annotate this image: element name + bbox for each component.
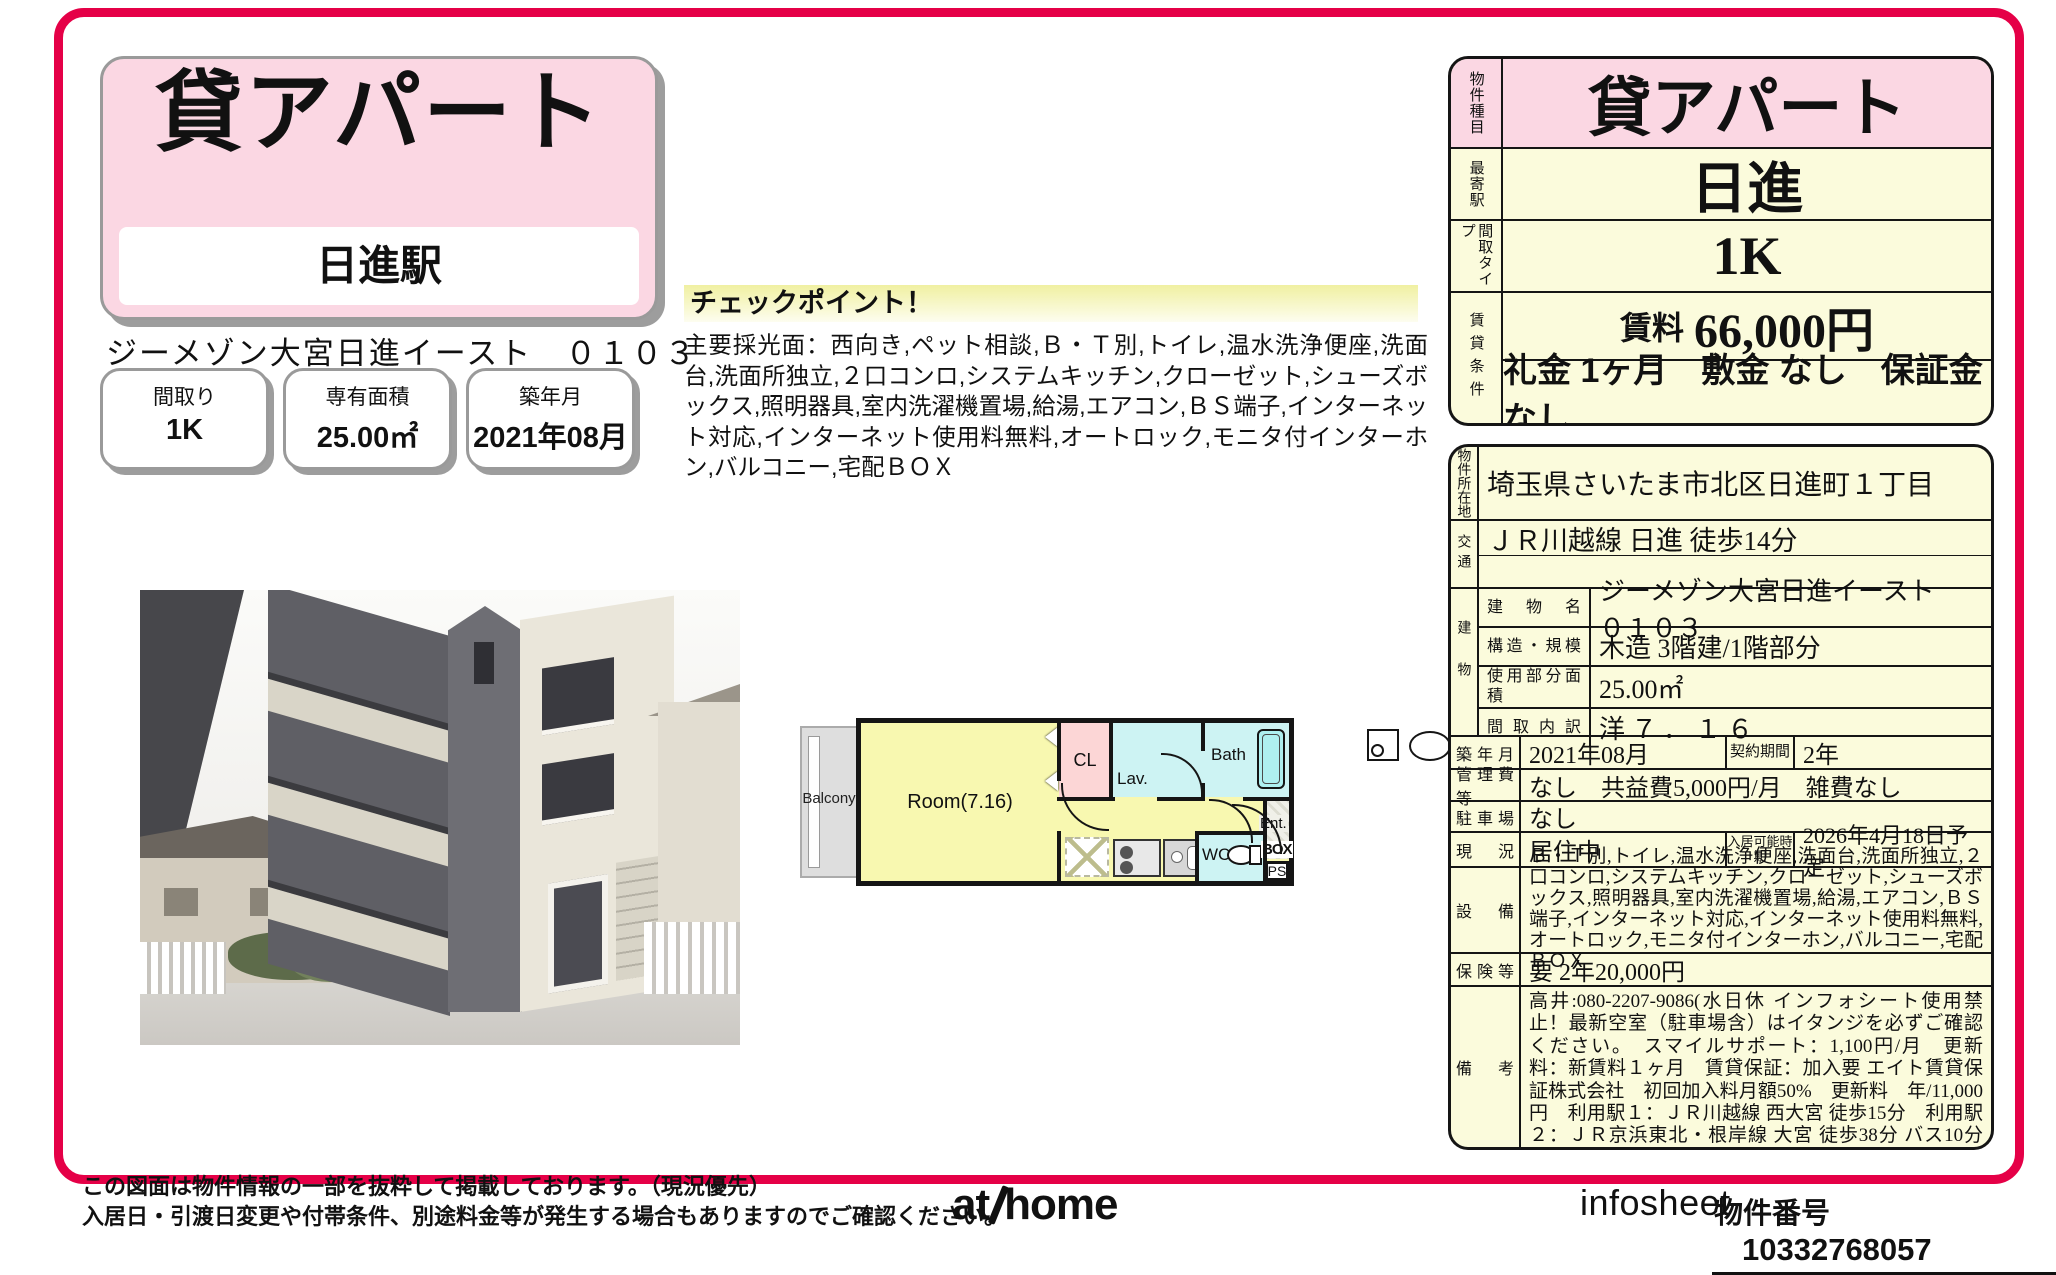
athome-logo-at: at — [952, 1180, 989, 1230]
structure-value: 木造 3階建/1階部分 — [1591, 628, 1991, 665]
station-name-box: 日進駅 — [119, 227, 639, 305]
photo-fence — [140, 942, 226, 994]
infosheet-label: infosheet — [1580, 1182, 1731, 1224]
photo-window — [164, 888, 198, 916]
disclaimer-line2: 入居日・引渡日変更や付帯条件、別途料金等が発生する場合もありますのでご確認くださ… — [82, 1202, 1006, 1232]
contract-value: 2年 — [1795, 737, 1991, 768]
room-label: Room(7.16) — [861, 723, 1059, 881]
notes-label: 備考 — [1451, 987, 1521, 1147]
building-name-value: ジーメゾン大宮日進イースト ０１０３ — [1591, 589, 1991, 626]
notes-value: 高井:080-2207-9086(水日休 インフォシート使用禁止！最新空室（駐車… — [1521, 987, 1991, 1147]
type-value: 貸アパート — [1503, 59, 1991, 147]
bath-area: Bath — [1203, 723, 1289, 797]
layout-label: 間取タイプ — [1451, 221, 1503, 291]
info-table: 物件種目 貸アパート 最寄駅 日進 間取タイプ 1K 賃貸条件 賃料 66,00… — [1448, 56, 1994, 426]
structure-label: 構造・規模 — [1479, 628, 1591, 665]
detail-table: 物件所在地 埼玉県さいたま市北区日進町１丁目 交通 ＪＲ川越線 日進 徒歩14分… — [1448, 444, 1994, 1150]
access-line1: ＪＲ川越線 日進 徒歩14分 — [1479, 521, 1991, 556]
disclaimer-line1: この図面は物件情報の一部を抜粋して掲載しております。（現況優先） — [82, 1172, 1006, 1202]
photo-window — [542, 657, 614, 735]
fees-value: なし 共益費5,000円/月 雑費なし — [1521, 770, 1991, 800]
terms-label: 賃貸条件 — [1451, 293, 1503, 423]
athome-logo: at home — [952, 1180, 1117, 1230]
photo-fence — [644, 922, 740, 994]
summary-value: 25.00㎡ — [286, 414, 449, 456]
summary-label: 築年月 — [469, 381, 632, 411]
station-value: 日進 — [1503, 149, 1991, 219]
equipment-label: 設備 — [1451, 868, 1521, 952]
footer-disclaimer: この図面は物件情報の一部を抜粋して掲載しております。（現況優先） 入居日・引渡日… — [82, 1172, 1006, 1232]
type-label: 物件種目 — [1451, 59, 1503, 147]
floorplan-outline: Room(7.16) CL Lav. Bath WC Ent. BOX PS — [856, 718, 1294, 886]
property-name: ジーメゾン大宮日進イースト ０１０３ — [106, 328, 697, 373]
photo-window — [474, 642, 494, 684]
access-label: 交通 — [1451, 521, 1479, 587]
washer-icon — [1367, 729, 1399, 761]
sink-icon — [1409, 731, 1451, 761]
building-label: 建物 — [1451, 589, 1479, 735]
page-title: 貸アパート — [103, 65, 655, 162]
stove-icon — [1113, 839, 1161, 877]
pipe-space: PS — [1265, 861, 1289, 881]
location-label: 物件所在地 — [1451, 447, 1479, 519]
built-value: 2021年08月 — [1521, 737, 1725, 768]
summary-boxes: 間取り 1K 専有面積 25.00㎡ 築年月 2021年08月 — [100, 368, 635, 470]
property-number-label: 物件番号 — [1714, 1198, 1830, 1230]
insurance-value: 要 2年20,000円 — [1521, 954, 1991, 985]
contract-label: 契約期間 — [1725, 737, 1795, 768]
photo-window — [542, 753, 614, 825]
used-area-label: 使用部分面積 — [1479, 667, 1591, 707]
equipment-value: Ｂ・Ｔ別,トイレ,温水洗浄便座,洗面台,洗面所独立,２口コンロ,システムキッチン… — [1521, 868, 1991, 952]
building-photo — [140, 590, 740, 1045]
property-number-value: 10332768057 — [1742, 1232, 1932, 1267]
summary-label: 間取り — [103, 381, 266, 411]
summary-box-layout: 間取り 1K — [100, 368, 269, 470]
insurance-label: 保険等 — [1451, 954, 1521, 985]
photo-main-facade — [268, 590, 450, 1016]
bathtub-icon — [1257, 729, 1285, 789]
hatch-square — [1065, 837, 1109, 877]
location-value: 埼玉県さいたま市北区日進町１丁目 — [1479, 447, 1991, 519]
floor-plan: Balcony Room(7.16) CL Lav. Bath WC Ent. — [800, 718, 1300, 898]
summary-box-area: 専有面積 25.00㎡ — [283, 368, 452, 470]
photo-entrance-door — [548, 874, 608, 994]
door-arc — [1061, 783, 1109, 831]
used-area-value: 25.00㎡ — [1591, 667, 1991, 707]
checkpoint-banner: チェックポイント！ — [684, 285, 1418, 322]
property-number: 物件番号 10332768057 — [1712, 1190, 2056, 1275]
fees-label: 管理費等 — [1451, 770, 1521, 800]
lavatory-label: Lav. — [1117, 769, 1148, 789]
summary-value: 1K — [103, 414, 266, 447]
status-label: 現況 — [1451, 833, 1521, 866]
building-name-label: 建物名 — [1479, 589, 1591, 626]
athome-logo-home: home — [1004, 1180, 1117, 1230]
bath-label: Bath — [1211, 745, 1246, 765]
summary-value: 2021年08月 — [469, 414, 632, 456]
layout-value: 1K — [1503, 221, 1991, 291]
checkpoint-text: 主要採光面：西向き,ペット相談,Ｂ・Ｔ別,トイレ,温水洗浄便座,洗面台,洗面所独… — [684, 330, 1428, 483]
station-label: 最寄駅 — [1451, 149, 1503, 219]
summary-box-built: 築年月 2021年08月 — [466, 368, 635, 470]
title-box: 貸アパート 日進駅 — [100, 56, 658, 320]
parking-label: 駐車場 — [1451, 802, 1521, 831]
summary-label: 専有面積 — [286, 381, 449, 411]
terms-detail: 礼金 1ヶ月 敷金 なし 保証金 なし — [1503, 361, 1991, 423]
